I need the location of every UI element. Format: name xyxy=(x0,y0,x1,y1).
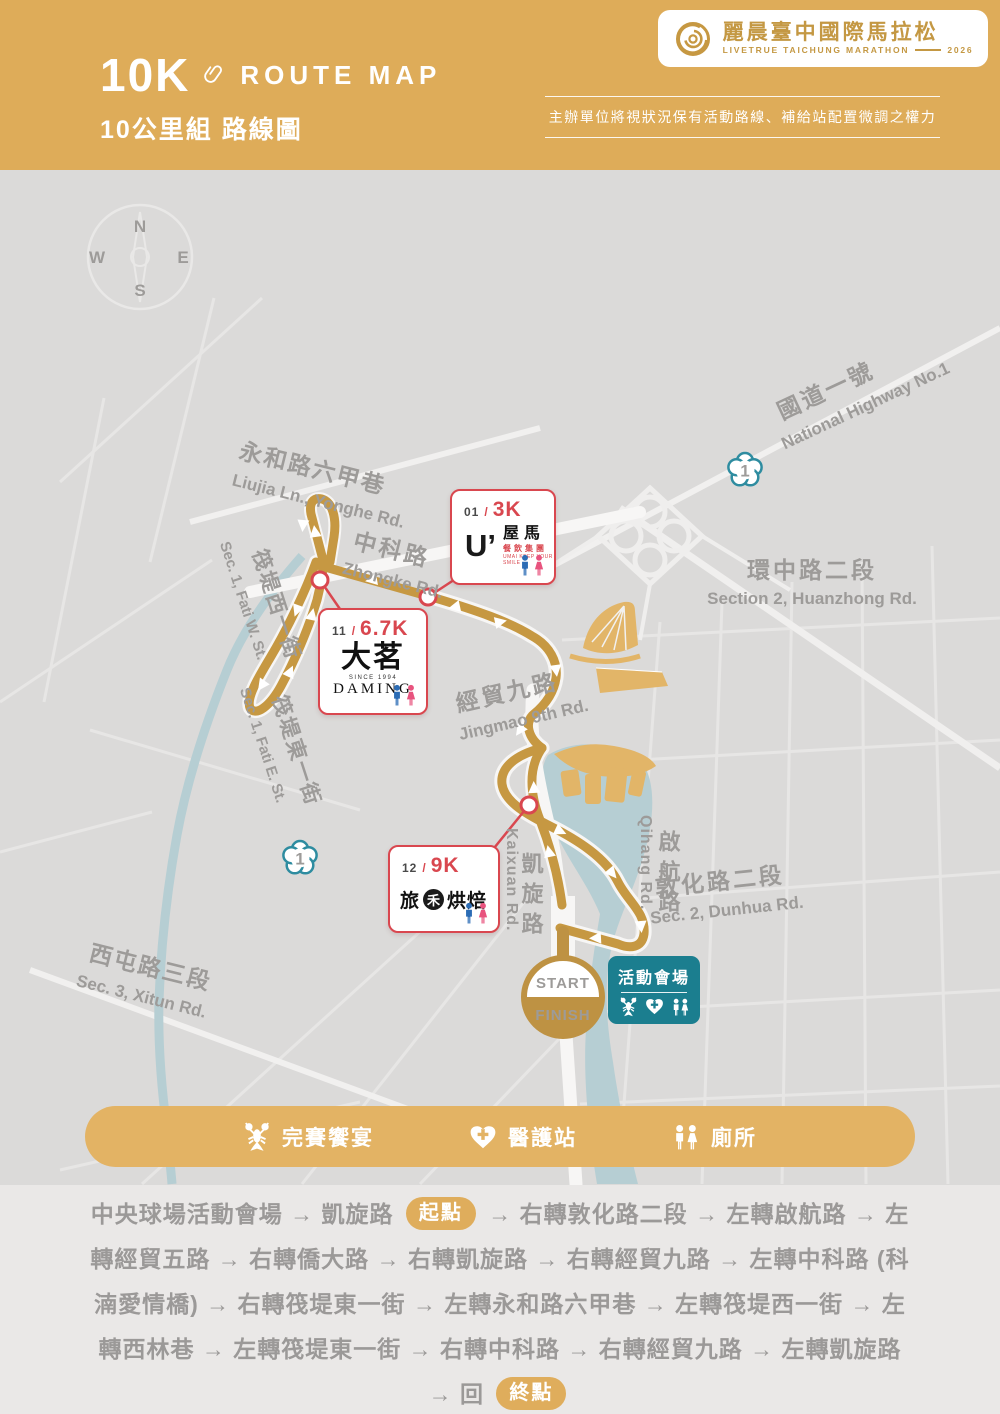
start-point-badge: 起點 xyxy=(406,1197,476,1230)
brand-logo-icon xyxy=(673,19,713,59)
legend-item-toilet: 廁所 xyxy=(672,1122,757,1152)
brand-title-zh: 麗晨臺中國際馬拉松 xyxy=(723,22,939,43)
checkpoint-card-9k: 12 / 9K 旅 禾 烘焙 xyxy=(388,845,500,933)
brand-text: 麗晨臺中國際馬拉松 LIVETRUE TAICHUNG MARATHON 202… xyxy=(723,22,974,55)
brand-card: 麗晨臺中國際馬拉松 LIVETRUE TAICHUNG MARATHON 202… xyxy=(658,10,988,67)
medical-heart-icon xyxy=(645,997,664,1016)
header: 10K ROUTE MAP 10公里組 路線圖 麗晨臺中國際馬拉松 LIVETR… xyxy=(0,0,1000,170)
medical-heart-icon xyxy=(469,1123,497,1151)
directions-body: → 右轉敦化路二段 → 左轉啟航路 → 左轉經貿五路 → 右轉僑大路 → 右轉凱… xyxy=(90,1201,909,1407)
luhe-logo-pre: 旅 xyxy=(400,886,420,913)
checkpoint-header: 11 / 6.7K xyxy=(320,610,426,641)
route-map-label: ROUTE MAP xyxy=(240,60,441,91)
legend-label: 廁所 xyxy=(711,1122,757,1152)
checkpoint-separator: / xyxy=(352,624,355,638)
legend-label: 醫護站 xyxy=(508,1122,577,1152)
compass-e: E xyxy=(177,248,188,267)
umai-logo-zh: 屋馬 xyxy=(503,525,554,543)
highway-marker-number: 1 xyxy=(295,850,304,869)
restroom-icon xyxy=(672,1124,700,1150)
road-label-huanzhong-en: Section 2, Huanzhong Rd. xyxy=(707,589,917,608)
umai-logo-mark: U’ xyxy=(465,530,496,561)
highway-marker-number: 1 xyxy=(740,462,749,481)
compass-n: N xyxy=(134,217,146,236)
paperclip-icon xyxy=(200,60,231,91)
brand-title-en: LIVETRUE TAICHUNG MARATHON 2026 xyxy=(723,45,974,55)
checkpoint-dot-9k xyxy=(521,797,537,813)
daming-logo-zh: 大茗 xyxy=(320,643,426,673)
checkpoint-number: 01 xyxy=(464,505,479,519)
checkpoint-header: 12 / 9K xyxy=(390,847,498,878)
road-label-huanzhong-zh: 環中路二段 xyxy=(747,557,877,583)
route-directions: 中央球場活動會場 → 凱旋路 起點 → 右轉敦化路二段 → 左轉啟航路 → 左轉… xyxy=(90,1192,910,1414)
start-finish-marker: START FINISH xyxy=(524,958,602,1036)
restroom-icon xyxy=(464,902,489,924)
start-label: START xyxy=(536,975,590,992)
distance-label: 10K xyxy=(100,52,190,98)
restroom-icon xyxy=(520,554,545,576)
legend-label: 完賽饗宴 xyxy=(282,1122,374,1152)
disclaimer: 主辦單位將視狀況保有活動路線、補給站配置微調之權力 xyxy=(545,96,940,138)
checkpoint-card-6-7k: 11 / 6.7K 大茗 SINCE 1994 DAMING xyxy=(318,608,428,715)
brand-year: 2026 xyxy=(947,45,973,55)
checkpoint-number: 11 xyxy=(332,624,347,638)
directions-lead: 中央球場活動會場 → 凱旋路 xyxy=(91,1201,401,1227)
checkpoint-distance: 9K xyxy=(431,854,460,878)
checkpoint-distance: 6.7K xyxy=(360,617,408,641)
checkpoint-dot-6-7k xyxy=(312,572,328,588)
finish-label: FINISH xyxy=(535,1007,590,1024)
lobster-icon xyxy=(619,997,638,1017)
page-title: 10K ROUTE MAP xyxy=(100,52,441,98)
umai-logo-sub: 餐飲集團 xyxy=(503,543,554,554)
checkpoint-separator: / xyxy=(484,505,487,519)
end-point-badge: 終點 xyxy=(496,1377,566,1410)
brand-en-text: LIVETRUE TAICHUNG MARATHON xyxy=(723,45,910,55)
checkpoint-number: 12 xyxy=(402,861,417,875)
compass-w: W xyxy=(89,248,106,267)
subtitle-zh: 10公里組 路線圖 xyxy=(100,110,303,146)
event-venue-badge: 活動會場 xyxy=(608,956,700,1024)
road-label-kaixuan-zh: 凱旋路 xyxy=(519,852,544,942)
luhe-logo-circle: 禾 xyxy=(423,889,444,910)
lobster-icon xyxy=(243,1122,271,1152)
compass-s: S xyxy=(134,281,145,300)
venue-divider xyxy=(621,992,687,993)
checkpoint-header: 01 / 3K xyxy=(452,491,554,522)
restroom-icon xyxy=(671,998,690,1016)
road-label-kaixuan-en: Kaixuan Rd. xyxy=(503,828,520,931)
restroom-icon xyxy=(392,684,417,706)
checkpoint-separator: / xyxy=(422,861,425,875)
legend-item-feast: 完賽饗宴 xyxy=(243,1122,374,1152)
venue-label: 活動會場 xyxy=(618,964,690,988)
legend-bar: 完賽饗宴 醫護站 廁所 xyxy=(85,1106,915,1167)
checkpoint-distance: 3K xyxy=(493,498,522,522)
legend-item-medical: 醫護站 xyxy=(469,1122,577,1152)
checkpoint-card-3k: 01 / 3K U’ 屋馬 餐飲集團 UMAI KEEP YOUR SMILE xyxy=(450,489,556,585)
brand-divider xyxy=(915,49,941,51)
route-map-poster: 10K ROUTE MAP 10公里組 路線圖 麗晨臺中國際馬拉松 LIVETR… xyxy=(0,0,1000,1414)
road-label-qihang-en: Qihang Rd. xyxy=(637,815,654,910)
